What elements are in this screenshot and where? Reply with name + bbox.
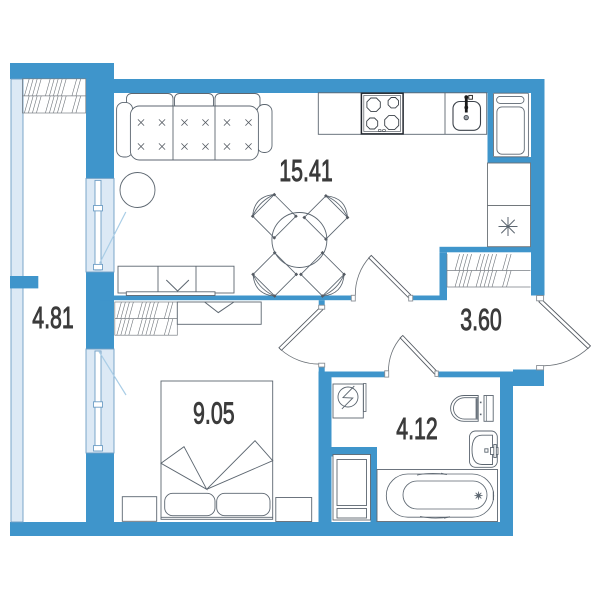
svg-text:9.05: 9.05: [193, 396, 235, 431]
svg-text:4.81: 4.81: [32, 300, 74, 335]
svg-text:15.41: 15.41: [279, 153, 332, 188]
svg-text:3.60: 3.60: [460, 302, 502, 337]
svg-text:4.12: 4.12: [396, 411, 438, 446]
